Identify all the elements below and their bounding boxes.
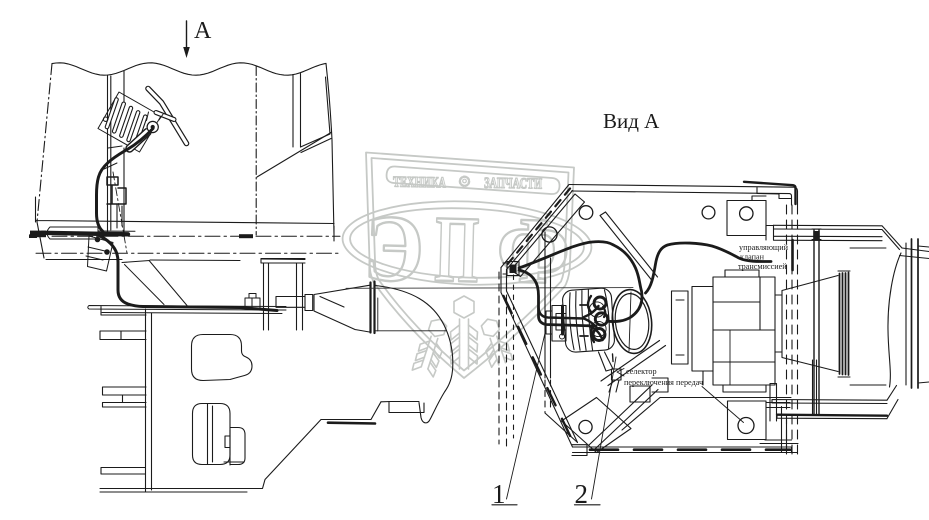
svg-text:Вид А: Вид А [603,109,660,133]
svg-text:клапан: клапан [740,253,765,262]
svg-text:П: П [433,196,480,303]
svg-text:селектор: селектор [626,367,657,376]
svg-text:трансмиссией: трансмиссией [738,262,787,271]
svg-text:A: A [194,18,212,44]
svg-text:переключения передач: переключения передач [624,378,703,387]
svg-text:Э: Э [362,195,425,303]
svg-text:управляющий: управляющий [739,243,789,252]
svg-text:ЗАПЧАСТИ: ЗАПЧАСТИ [484,176,542,193]
svg-text:ТЕХНИКА: ТЕХНИКА [393,175,446,192]
